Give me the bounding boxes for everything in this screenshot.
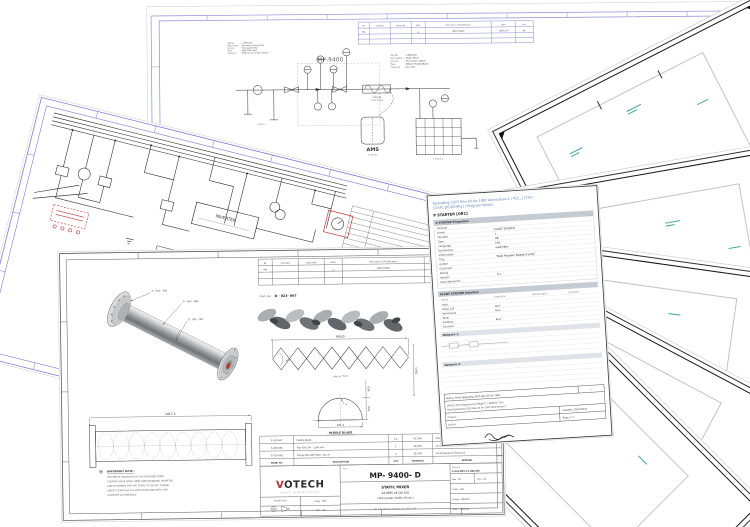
- revision-triangle-icon: △: [417, 31, 419, 34]
- svg-text:MARK No.: MARK No.: [271, 461, 283, 464]
- svg-text:Pipe DN 100 - 1100 mm: Pipe DN 100 - 1100 mm: [297, 446, 325, 449]
- pid-info-block-right: Tag No: L-MIX-040 Description: Static Mi…: [390, 54, 429, 69]
- ams-label: AMS: [367, 147, 380, 153]
- svg-text:Data type: Data type: [494, 295, 506, 299]
- svg-text:Number: Number: [437, 234, 449, 239]
- top-ref-caption: refer to "TOP": [333, 375, 348, 378]
- svg-text:FIRST ISSUE: FIRST ISSUE: [377, 268, 390, 270]
- svg-text:Constant: Constant: [443, 325, 454, 329]
- svg-text:Remanence: Remanence: [442, 312, 457, 316]
- dim-106: 106.0: [414, 367, 418, 375]
- svg-text:SS 304: SS 304: [414, 452, 423, 455]
- important-note: !! IMPORTANT NOTE : THE PIPE IS STANDARD…: [99, 468, 173, 497]
- svg-text:No.: No.: [362, 25, 366, 27]
- svg-text:General: General: [437, 226, 448, 231]
- svg-text:VOTECH: VOTECH: [276, 479, 325, 491]
- svg-text:DUST SUPPRESSION: DUST SUPPRESSION: [281, 492, 320, 495]
- svg-text:Title: Title: [439, 257, 445, 261]
- paddle-blade-section: [312, 381, 371, 428]
- svg-text:3-023-067: 3-023-067: [271, 439, 283, 442]
- svg-text:DESCRIPTION: DESCRIPTION: [333, 461, 350, 464]
- svg-text:"Main Program Sweep (Cycle)": "Main Program Sweep (Cycle)": [496, 252, 536, 258]
- svg-text:Page 1 / 1: Page 1 / 1: [563, 416, 576, 420]
- svg-text:Checked: Checked: [376, 25, 385, 27]
- svg-text:FIRST ISSUE: FIRST ISSUE: [452, 31, 465, 33]
- dim-thickness: 2: [346, 403, 348, 406]
- logo-v: V: [276, 480, 284, 491]
- svg-text:Bool: Bool: [496, 318, 502, 321]
- svg-text:LAD: LAD: [495, 240, 501, 244]
- svg-text:Created: 12/01/2024: Created: 12/01/2024: [562, 408, 587, 413]
- dim-151: 151.2: [337, 423, 345, 427]
- svg-text:Description of Modification: Description of Modification: [445, 23, 471, 26]
- svg-text:Mark: Mark: [331, 261, 337, 264]
- flow-arrow-icon: [406, 87, 411, 90]
- svg-text:Flange DN 100 PN16 - Dia 4": Flange DN 100 PN16 - Dia 4": [297, 454, 330, 457]
- svg-text:QTY: QTY: [393, 460, 398, 463]
- svg-text:AS NMS 04 DN 100: AS NMS 04 DN 100: [382, 491, 410, 495]
- dim-1017: 1017.2: [165, 412, 176, 416]
- svg-text:L-MX-04: L-MX-04: [372, 96, 381, 99]
- svg-text:Default value: Default value: [532, 292, 547, 296]
- svg-text:Scale : NTS: Scale : NTS: [314, 500, 327, 503]
- svg-text:PLANT STARTER: PLANT STARTER: [494, 226, 515, 231]
- svg-text:: 40 m3/h: : 40 m3/h: [405, 66, 416, 69]
- properties-box: [434, 216, 598, 289]
- section-bar: [440, 323, 600, 338]
- title-block: VOTECH DUST SUPPRESSION PROJECTION Scale…: [260, 463, 503, 516]
- svg-text:By: By: [264, 263, 267, 265]
- signature-scribble: [485, 432, 514, 441]
- ladder-contacts: [441, 340, 508, 349]
- svg-text:: 4000 l/h (at 10 bar station: : 4000 l/h (at 10 bar station): [240, 51, 269, 54]
- svg-text:Scale : NTS: Scale : NTS: [452, 489, 464, 491]
- pid-equipment-tag: MP-9400: [317, 57, 343, 63]
- drawing-number: MP- 9400- D: [369, 470, 421, 480]
- section-bar: [442, 353, 602, 368]
- svg-text:3-023-065: 3-023-065: [271, 454, 283, 457]
- svg-text:1: 1: [494, 232, 496, 236]
- svg-text:Bool: Bool: [495, 304, 501, 307]
- svg-text:0.1: 0.1: [497, 272, 502, 276]
- svg-text:1: 1: [590, 388, 592, 391]
- svg-text:RA: RA: [362, 31, 365, 34]
- svg-text:Name: Pond Operating 2025 Rev-: Name: Pond Operating 2025 Rev-03 for 1WD: [446, 394, 500, 400]
- svg-text:D - 023 - 065: D - 023 - 065: [152, 289, 168, 292]
- svg-text:DIAMETER ACCORDINGLY.: DIAMETER ACCORDINGLY.: [107, 493, 137, 496]
- svg-text:Description of Modification: Description of Modification: [369, 260, 398, 263]
- svg-text:Size : A3: Size : A3: [316, 509, 326, 512]
- votech-logo: VOTECH DUST SUPPRESSION: [276, 479, 325, 494]
- document-collage: No. Checked Approved Mark Description of…: [0, 0, 750, 527]
- svg-text:Drawn : JQJAYER: Drawn : JQJAYER: [452, 498, 469, 501]
- svg-text:Capacity: Capacity: [227, 52, 237, 55]
- svg-text:Checked: Checked: [281, 263, 291, 265]
- svg-text:P-OM-A02: P-OM-A02: [368, 153, 378, 156]
- svg-text:!!: !!: [99, 469, 103, 474]
- svg-text:Title :: Title :: [343, 467, 349, 470]
- svg-text:Date: Date: [501, 23, 506, 26]
- mark-no-label: Mark No :: [260, 294, 273, 298]
- zigzag-development: [272, 338, 414, 398]
- svg-text:Rev : 00: Rev : 00: [452, 479, 461, 481]
- svg-text:Mark: Mark: [416, 24, 422, 27]
- svg-text:D - 023 - 066: D - 023 - 066: [183, 300, 199, 303]
- svg-text:COUNTRY HAVE MADE THEIR OWN ST: COUNTRY HAVE MADE THEIR OWN STANDARD DIA…: [107, 479, 173, 483]
- svg-text:( Removable Paddle Blade ): ( Removable Paddle Blade ): [377, 496, 414, 501]
- svg-text:STATIC MIXER: STATIC MIXER: [381, 485, 409, 489]
- svg-text:P-003-MEC-FL-DW-005: P-003-MEC-FL-DW-005: [452, 470, 480, 473]
- svg-text:Bool: Bool: [495, 309, 501, 312]
- svg-text:MA: MA: [264, 268, 268, 271]
- svg-text:16/01/24: 16/01/24: [499, 30, 509, 32]
- tia-properties: General NamePLANT STARTER Number1 TypeOB…: [434, 217, 597, 285]
- svg-text:14: 14: [394, 438, 398, 441]
- svg-text:PROJECTION: PROJECTION: [274, 500, 287, 502]
- svg-text:Type: Type: [438, 239, 445, 243]
- pid-piping: [235, 48, 478, 157]
- svg-text:Dwg No.: Dwg No.: [452, 467, 461, 469]
- flow-arrow-icon: [316, 88, 321, 91]
- dim-58: 58.0: [368, 406, 371, 412]
- svg-text:Paddle Blade: Paddle Blade: [297, 439, 313, 442]
- svg-text:THE PIPE IS STANDARD DN 100 HO: THE PIPE IS STANDARD DN 100 HOW EVER SOM…: [107, 475, 164, 479]
- svg-text:OB: OB: [495, 236, 499, 240]
- mark-no-value: D - 023- 067: [275, 294, 297, 298]
- svg-text:Comment: Comment: [439, 266, 452, 271]
- inverter-block: INVERTER: [191, 202, 258, 239]
- pid-revision-text: No. Checked Approved Mark Description of…: [362, 23, 527, 34]
- svg-text:Temp: Temp: [442, 316, 449, 319]
- svg-text:Name: Name: [437, 230, 445, 234]
- pid-info-block-left: Tag No: L-AMS-070 Description: Automatic…: [227, 41, 269, 54]
- svg-text:automatic: automatic: [495, 244, 509, 249]
- ams-tank: [361, 117, 384, 144]
- svg-text:Author: Author: [439, 262, 449, 267]
- svg-text:Approved: Approved: [396, 24, 406, 27]
- svg-text:Size : A3: Size : A3: [477, 478, 487, 481]
- svg-text:Capacity: Capacity: [391, 66, 401, 69]
- pipe-3d-render: [103, 288, 243, 384]
- plc-document-sheet: Operating 2025 Rev-03 for 1WD Alternativ…: [426, 184, 613, 446]
- svg-text:AND THICKNESS FOR THE 'FORM' O: AND THICKNESS FOR THE 'FORM' OF DN 100. …: [107, 484, 169, 488]
- paddle-blade-caption: PADDLE BLADE: [329, 430, 353, 434]
- svg-text:D - 023 - 067: D - 023 - 067: [188, 318, 204, 321]
- helical-blade-render: [256, 304, 405, 336]
- tia-block-title: P STARTER [OB1]: [433, 211, 468, 217]
- svg-text:INVERTER: INVERTER: [215, 213, 236, 223]
- storage-tank: [416, 118, 478, 155]
- assembly-side-view: [89, 415, 252, 467]
- svg-text:Language: Language: [438, 243, 451, 248]
- svg-text:SS 304: SS 304: [414, 445, 423, 448]
- svg-text:L-MC-19: L-MC-19: [257, 124, 265, 126]
- svg-text:2: 2: [395, 453, 397, 456]
- svg-text:User-defined ID: User-defined ID: [440, 279, 460, 284]
- svg-text:Author:: Author:: [448, 423, 457, 427]
- svg-text:STATIC MIXER: STATIC MIXER: [371, 99, 384, 102]
- svg-text:L-TNK-001: L-TNK-001: [434, 158, 444, 160]
- svg-text:Version: Version: [440, 275, 450, 280]
- svg-text:Do not scale this drawing. If: Do not scale this drawing. If in doubt, …: [374, 507, 417, 511]
- svg-text:00: 00: [523, 30, 526, 32]
- dim-943: 943.0: [336, 335, 345, 339]
- svg-text:Family: Family: [440, 271, 449, 276]
- revision-triangle-icon: △: [332, 267, 335, 271]
- red-terminal-strip: [48, 205, 88, 236]
- svg-text:Rev: Rev: [522, 24, 526, 26]
- svg-text:SS 304: SS 304: [414, 437, 423, 440]
- svg-text:Input: Input: [442, 303, 448, 306]
- red-highlight-gauge: [323, 210, 353, 237]
- svg-text:Comment: Comment: [568, 290, 579, 294]
- svg-text:Project:: Project:: [448, 416, 457, 420]
- svg-text:3-023-066: 3-023-066: [271, 447, 283, 450]
- svg-text:Local Standard Thickness: Local Standard Thickness: [436, 452, 466, 455]
- svg-text:REMARK: REMARK: [462, 459, 473, 462]
- svg-text:IMPORTANT NOTE :: IMPORTANT NOTE :: [107, 469, 135, 473]
- logo-rest: OTECH: [284, 479, 325, 491]
- dim-48: 48.0: [367, 386, 370, 392]
- svg-text:ADJUST CAREFULLY ALL PART IN R: ADJUST CAREFULLY ALL PART IN RELATED WIT…: [107, 488, 168, 492]
- svg-text:Name: Name: [441, 298, 448, 301]
- svg-text:Date : 12/01/24: Date : 12/01/24: [453, 508, 470, 511]
- tia-footer-table: Name: Pond Operating 2025 Rev-03 for 1WD…: [444, 384, 606, 428]
- dim-angle: 90°: [286, 359, 290, 362]
- svg-text:Approved: Approved: [306, 261, 317, 264]
- svg-text:MATERIAL: MATERIAL: [412, 460, 425, 463]
- network2-rows: [443, 363, 604, 388]
- svg-text:1: 1: [395, 445, 397, 448]
